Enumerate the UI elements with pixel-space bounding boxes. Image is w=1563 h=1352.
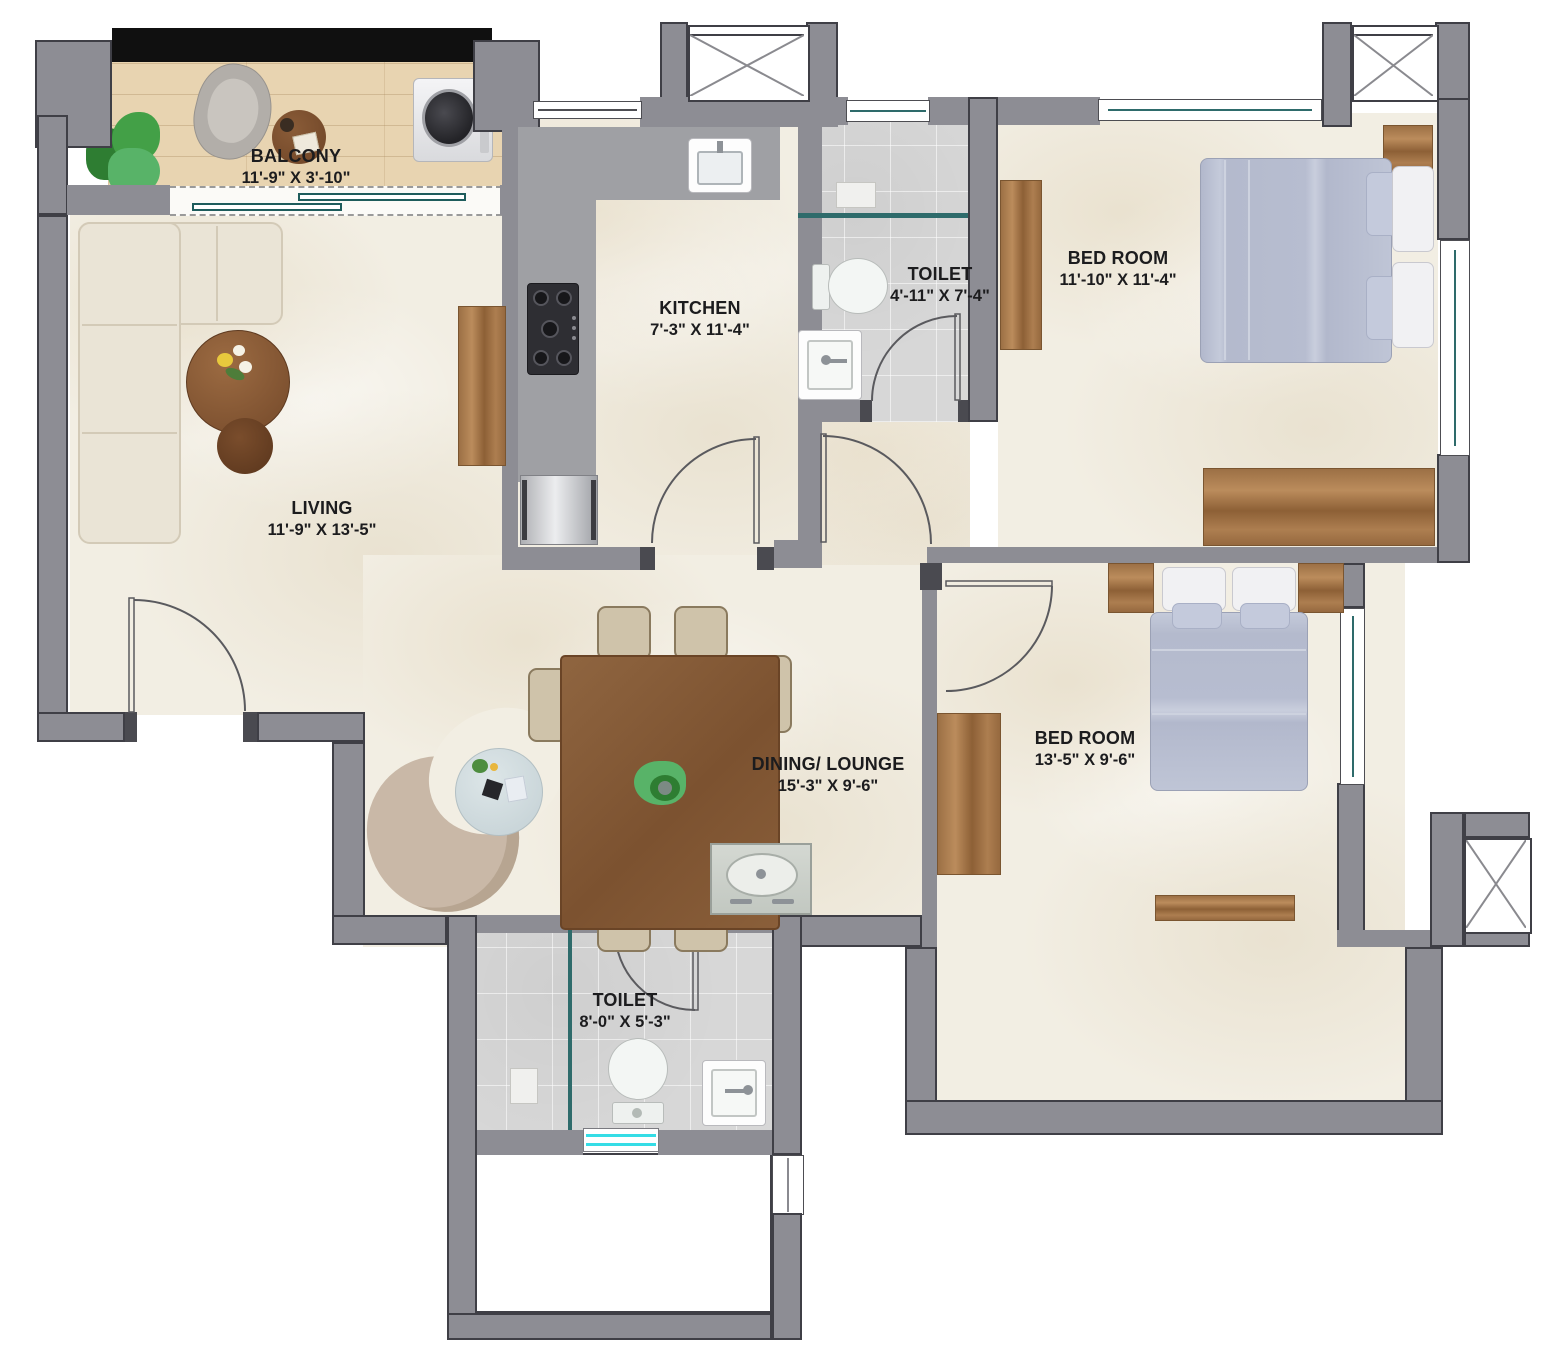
wall xyxy=(447,915,477,1340)
wall xyxy=(1337,783,1365,947)
shower-icon xyxy=(836,182,876,208)
room-name: BED ROOM xyxy=(1035,728,1136,749)
sink xyxy=(798,330,862,400)
sink xyxy=(702,1060,766,1126)
wall xyxy=(806,22,838,100)
balcony-sliding-door xyxy=(170,186,502,216)
window xyxy=(1440,240,1470,456)
shower-divider xyxy=(798,213,988,218)
room-dims: 15'-3" X 9'-6" xyxy=(778,777,879,796)
room-label-kitchen: KITCHEN 7'-3" X 11'-4" xyxy=(600,296,800,342)
kitchen-door xyxy=(648,435,765,554)
wall xyxy=(257,712,365,742)
room-label-balcony: BALCONY 11'-9" X 3'-10" xyxy=(196,144,396,190)
wall xyxy=(1430,812,1464,947)
room-dims: 11'-10" X 11'-4" xyxy=(1059,271,1176,290)
wall xyxy=(905,1100,1443,1135)
kitchen-sink xyxy=(688,138,752,193)
wall xyxy=(505,547,640,570)
entry-door xyxy=(123,594,253,721)
wall xyxy=(927,547,1470,563)
elevator-shaft xyxy=(688,25,810,102)
wall xyxy=(800,915,922,947)
window xyxy=(1340,608,1365,785)
wall xyxy=(332,742,365,917)
desk xyxy=(1203,468,1435,546)
wall xyxy=(1435,22,1470,100)
bedroom-top-door xyxy=(817,432,934,555)
room-dims: 11'-9" X 13'-5" xyxy=(268,521,377,540)
wall xyxy=(968,97,998,422)
window xyxy=(846,100,930,122)
window xyxy=(772,1155,804,1215)
wall xyxy=(67,185,170,215)
bed xyxy=(1200,158,1435,363)
nightstand xyxy=(1108,563,1154,613)
wall xyxy=(37,215,68,715)
room-dims: 7'-3" X 11'-4" xyxy=(650,321,750,340)
room-name: LIVING xyxy=(291,498,352,519)
dresser xyxy=(1155,895,1295,921)
room-name: TOILET xyxy=(593,990,658,1011)
stove-icon xyxy=(527,283,579,375)
wall xyxy=(37,712,125,742)
wall xyxy=(37,115,68,215)
bedroom-bottom-door xyxy=(938,578,1060,698)
rug xyxy=(455,748,543,836)
wall xyxy=(1405,947,1443,1102)
room-name: BALCONY xyxy=(251,146,341,167)
room-label-bedroom-bottom: BED ROOM 13'-5" X 9'-6" xyxy=(985,726,1185,772)
elevator-shaft xyxy=(1464,838,1532,934)
wall xyxy=(1322,22,1352,127)
duct-shaft xyxy=(473,1153,772,1313)
wall xyxy=(477,1130,583,1155)
living-cabinet xyxy=(458,306,506,466)
wall xyxy=(905,947,937,1102)
dining-chair xyxy=(674,606,728,660)
room-name: KITCHEN xyxy=(659,298,740,319)
fridge-icon xyxy=(520,475,598,545)
window xyxy=(583,1128,659,1152)
wall xyxy=(772,915,802,1155)
wall xyxy=(658,1130,772,1155)
dining-chair xyxy=(597,606,651,660)
toilet-top-door xyxy=(868,312,964,411)
wall xyxy=(772,1213,802,1340)
toilet-fixture xyxy=(606,1038,670,1128)
wall xyxy=(1337,930,1430,947)
room-dims: 13'-5" X 9'-6" xyxy=(1035,751,1136,770)
side-table xyxy=(217,418,273,474)
wall xyxy=(1464,812,1530,838)
room-dims: 11'-9" X 3'-10" xyxy=(242,169,351,188)
elevator-shaft xyxy=(1352,25,1439,102)
wall xyxy=(1437,454,1470,563)
room-label-bedroom-top: BED ROOM 11'-10" X 11'-4" xyxy=(1018,246,1218,292)
wall xyxy=(928,97,1100,125)
room-label-dining: DINING/ LOUNGE 15'-3" X 9'-6" xyxy=(728,752,928,798)
wall xyxy=(1437,98,1470,240)
room-label-toilet-top: TOILET 4'-11" X 7'-4" xyxy=(840,262,1040,308)
room-name: TOILET xyxy=(908,264,973,285)
window xyxy=(1098,99,1322,121)
window xyxy=(533,101,642,119)
room-name: BED ROOM xyxy=(1068,248,1169,269)
room-label-living: LIVING 11'-9" X 13'-5" xyxy=(222,496,422,542)
floor-plan: BALCONY 11'-9" X 3'-10" LIVING 11'-9" X … xyxy=(0,0,1563,1352)
wall xyxy=(798,400,860,422)
room-label-toilet-bottom: TOILET 8'-0" X 5'-3" xyxy=(525,988,725,1034)
room-dims: 4'-11" X 7'-4" xyxy=(890,287,990,306)
balcony-top-strip xyxy=(112,28,492,62)
wall xyxy=(774,540,822,568)
wall xyxy=(473,40,540,132)
wash-basin xyxy=(710,843,812,915)
sofa xyxy=(78,222,181,544)
wall xyxy=(447,1313,772,1340)
room-dims: 8'-0" X 5'-3" xyxy=(579,1013,670,1032)
shower-icon xyxy=(510,1068,538,1104)
room-name: DINING/ LOUNGE xyxy=(752,754,905,775)
